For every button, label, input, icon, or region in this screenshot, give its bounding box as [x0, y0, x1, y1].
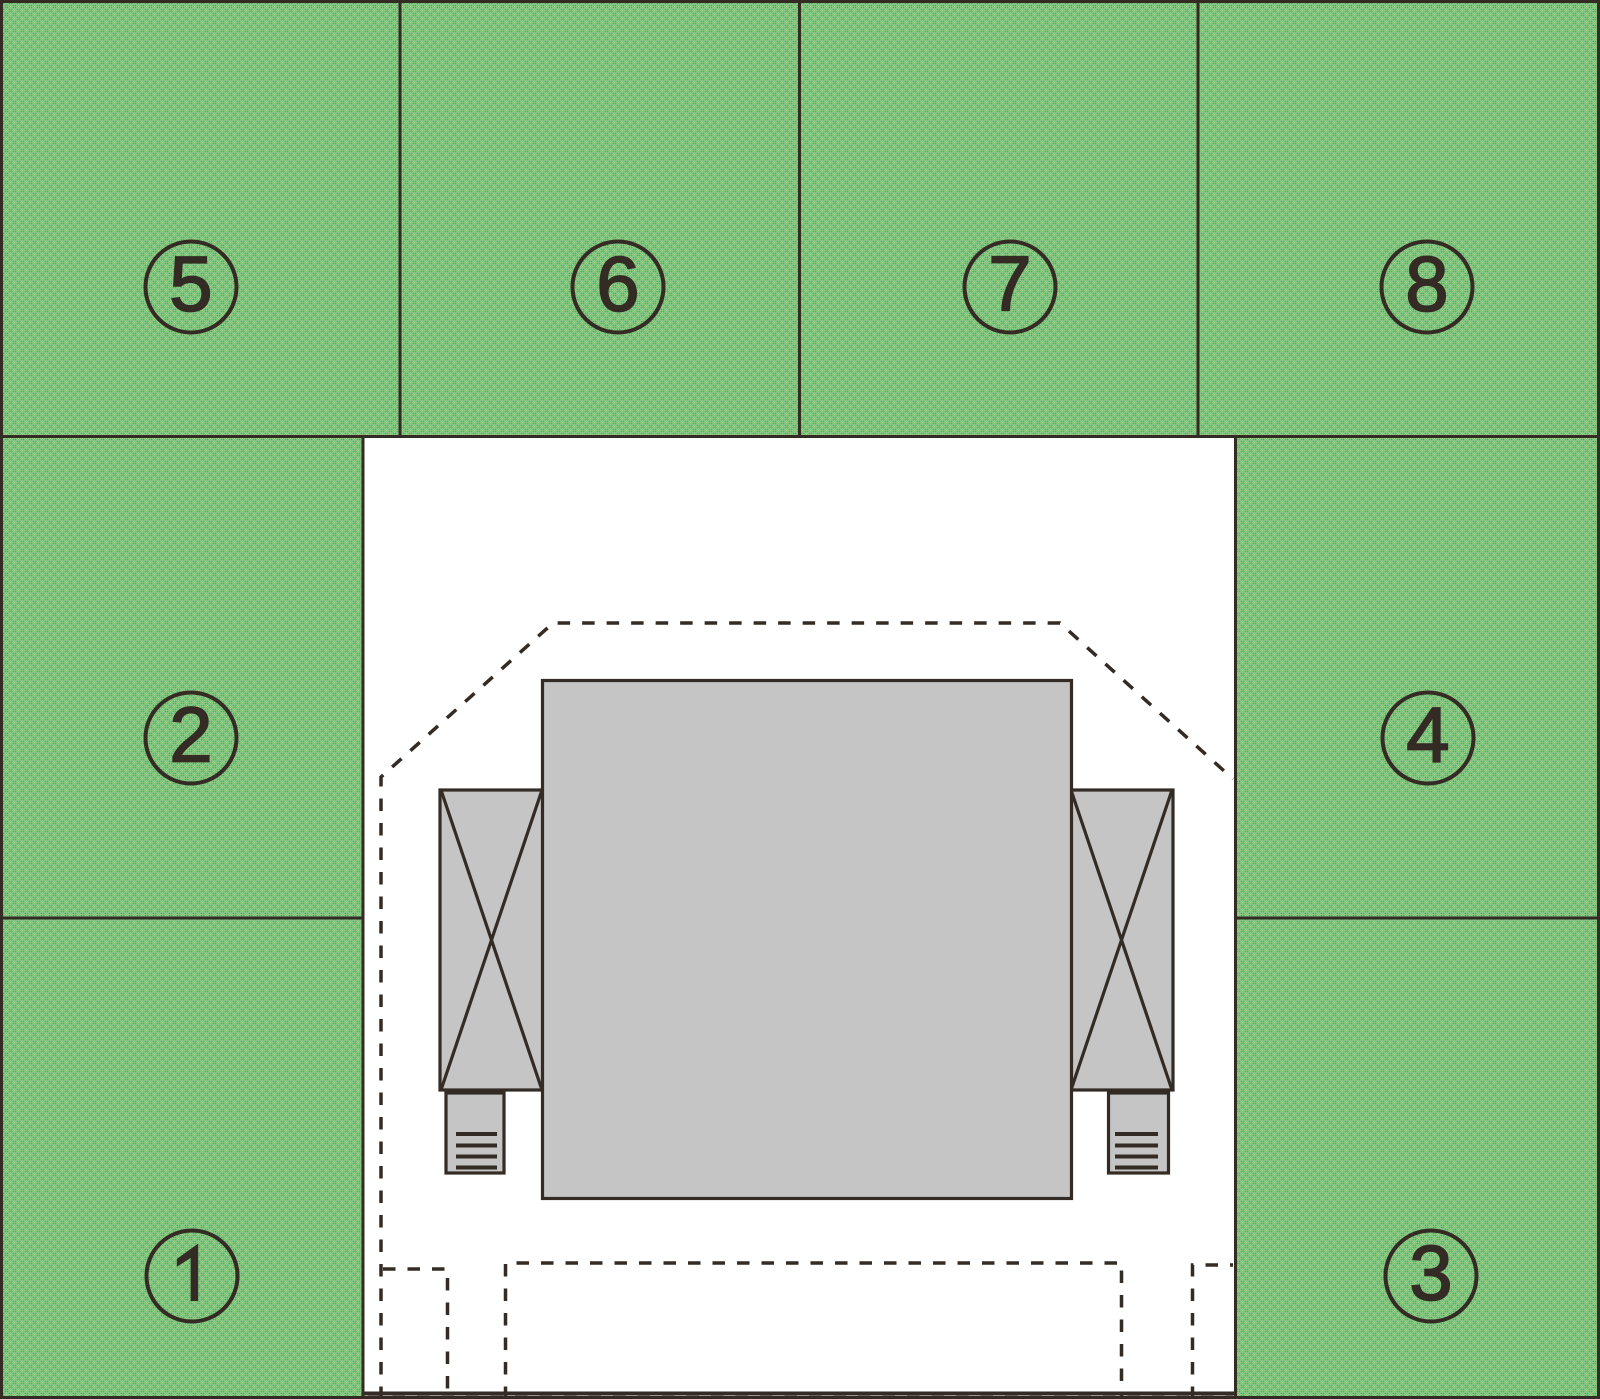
svg-text:6: 6 — [596, 240, 639, 328]
svg-text:8: 8 — [1405, 240, 1448, 328]
svg-text:4: 4 — [1406, 691, 1449, 779]
svg-text:3: 3 — [1409, 1229, 1452, 1317]
svg-text:5: 5 — [169, 240, 212, 328]
svg-text:7: 7 — [988, 240, 1031, 328]
svg-text:2: 2 — [169, 691, 212, 779]
